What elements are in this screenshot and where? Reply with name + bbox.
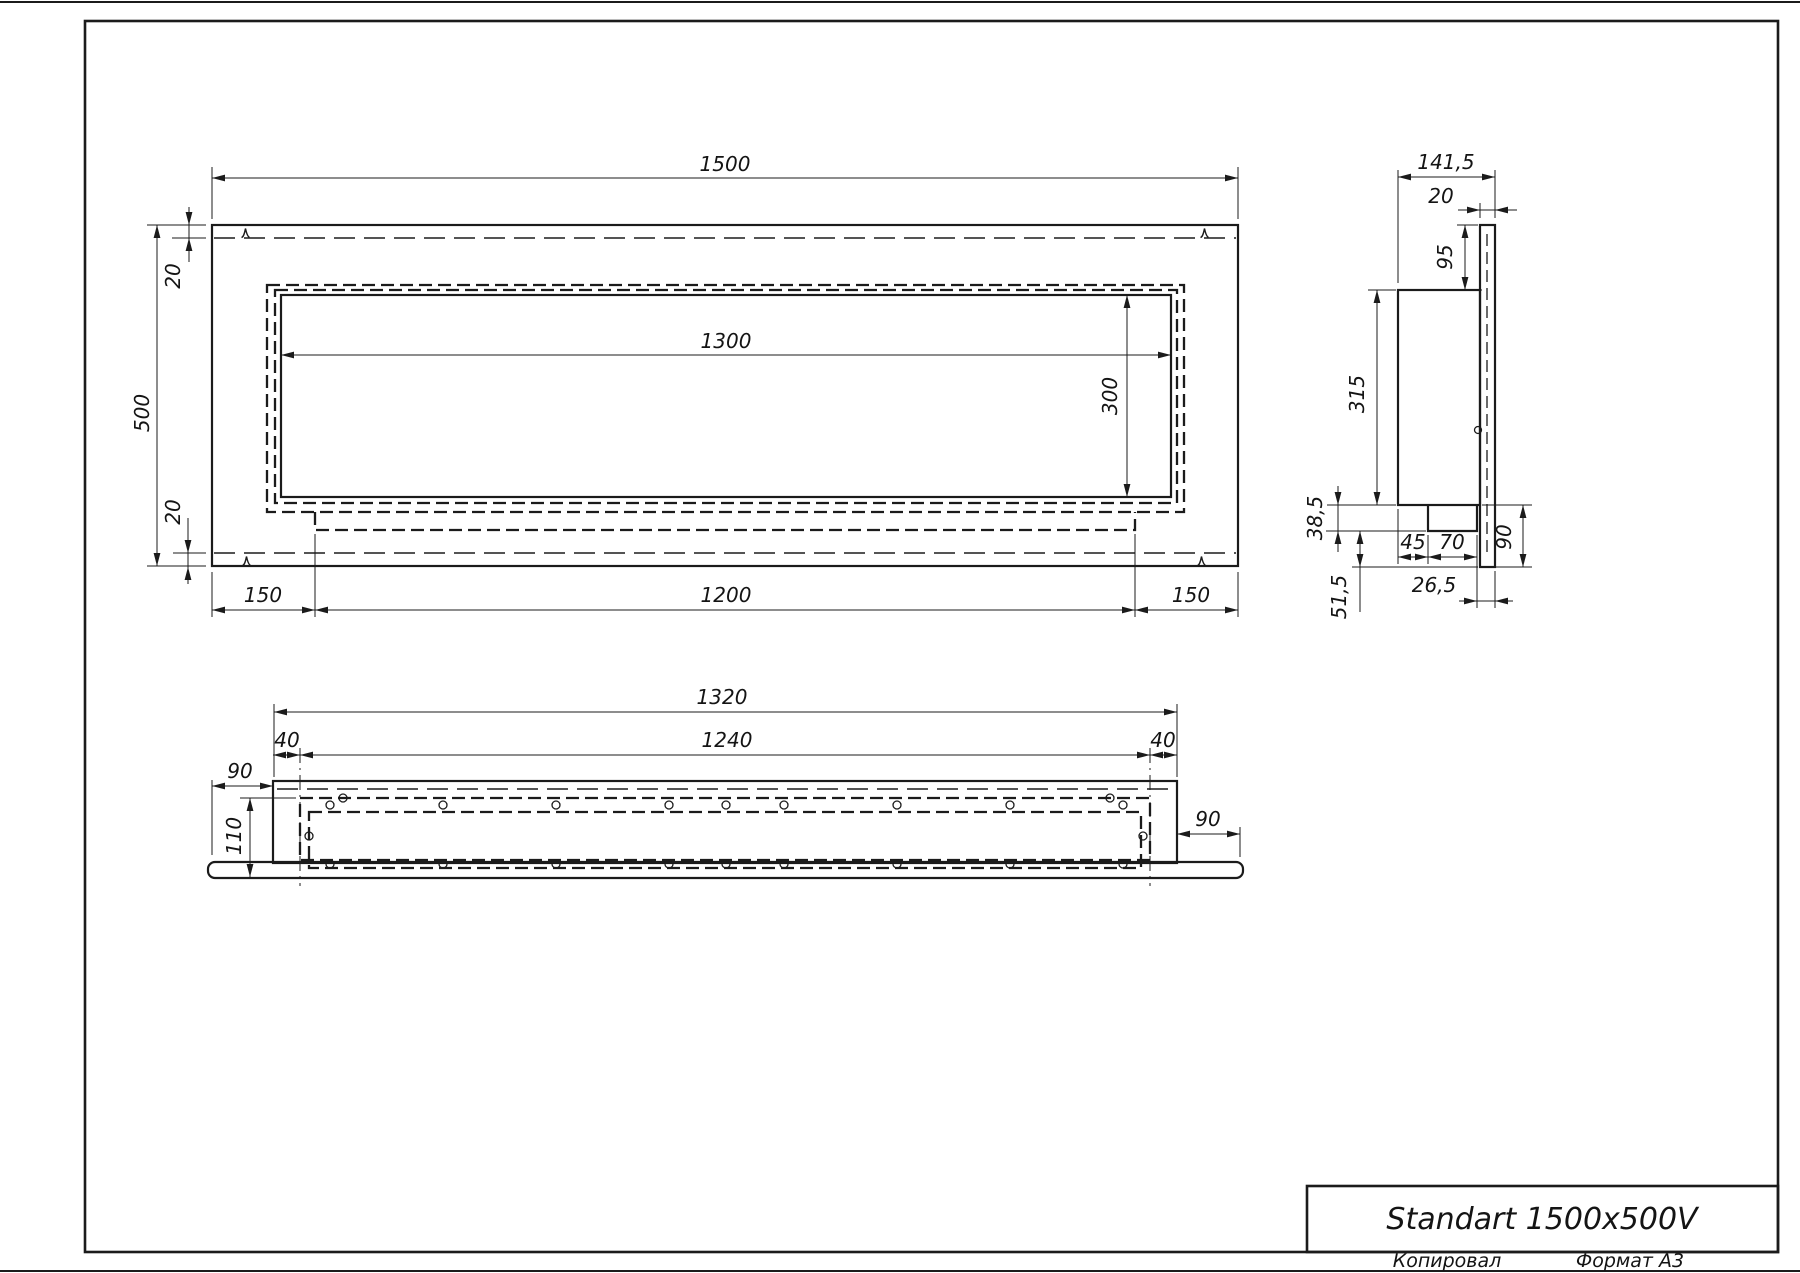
dim-right-margin: 150 xyxy=(1172,583,1210,607)
plan-base-plate xyxy=(208,862,1243,878)
dim-opening-width: 1300 xyxy=(701,329,752,353)
dim-side-lower-offset: 51,5 xyxy=(1327,575,1351,620)
dim-front-top-inset: 20 xyxy=(161,263,185,288)
plan-inner-frame-outer xyxy=(300,798,1150,860)
dim-plan-depth: 110 xyxy=(222,817,246,855)
front-view: 1500 500 20 20 1300 300 150 1200 150 xyxy=(130,152,1238,617)
dim-front-height: 500 xyxy=(130,394,154,432)
front-insert-hidden-frame-outer xyxy=(267,285,1184,512)
dim-plan-right-inset: 40 xyxy=(1150,728,1175,752)
dim-plan-outer-width: 1320 xyxy=(697,685,748,709)
dim-side-body-height: 315 xyxy=(1345,375,1369,413)
dim-plan-left-inset: 40 xyxy=(274,728,299,752)
dim-front-width: 1500 xyxy=(700,152,751,176)
side-body xyxy=(1398,290,1480,505)
drawing-frame xyxy=(85,21,1778,1252)
plan-body xyxy=(273,781,1177,863)
drawing-sheet: 1500 500 20 20 1300 300 150 1200 150 xyxy=(0,0,1800,1273)
dim-plan-left-overhang: 90 xyxy=(227,759,252,783)
drawing-canvas: 1500 500 20 20 1300 300 150 1200 150 xyxy=(0,0,1800,1273)
front-opening xyxy=(281,295,1171,497)
title-block: Standart 1500x500V Копировал Формат А3 xyxy=(1307,1186,1778,1272)
dim-front-bottom-inset: 20 xyxy=(161,499,185,524)
dim-side-lower-height: 90 xyxy=(1492,524,1516,549)
plan-centerlines xyxy=(300,748,1150,886)
weld-mark-icon xyxy=(1198,557,1206,566)
dim-side-tray-width: 70 xyxy=(1439,530,1464,554)
dim-side-front-inset: 45 xyxy=(1400,530,1425,554)
dim-left-margin: 150 xyxy=(244,583,282,607)
plan-view: 1320 1240 40 40 90 110 90 xyxy=(208,685,1243,886)
dim-plan-inner-span: 1240 xyxy=(702,728,753,752)
footer-format-label: Формат А3 xyxy=(1576,1250,1684,1272)
weld-mark-icon xyxy=(243,557,251,566)
side-view: 141,5 20 95 315 38,5 45 70 26,5 90 51,5 xyxy=(1303,150,1532,619)
side-burner-tray xyxy=(1428,505,1477,531)
title-model: Standart 1500x500V xyxy=(1386,1202,1700,1237)
dim-side-depth: 141,5 xyxy=(1417,150,1474,174)
front-insert-hidden-frame-inner xyxy=(275,290,1177,503)
dim-side-fascia: 20 xyxy=(1428,184,1453,208)
footer-copied-label: Копировал xyxy=(1393,1250,1502,1272)
front-arrow-stubs xyxy=(188,212,1238,610)
weld-mark-icon xyxy=(242,229,250,238)
dim-opening-height: 300 xyxy=(1098,377,1122,415)
dim-side-top-offset: 95 xyxy=(1433,244,1457,269)
weld-mark-icon xyxy=(1201,229,1209,238)
page-edge-lines xyxy=(0,2,1800,1271)
dim-plan-right-overhang: 90 xyxy=(1195,807,1220,831)
plan-screw-holes xyxy=(305,794,1147,868)
dim-bottom-span: 1200 xyxy=(701,583,752,607)
dim-side-tray-height: 38,5 xyxy=(1303,496,1327,541)
front-outer-body xyxy=(212,225,1238,566)
dim-side-rear-inset: 26,5 xyxy=(1412,573,1457,597)
front-chamber-hidden xyxy=(315,512,1135,530)
front-extension-lines xyxy=(147,167,1238,617)
